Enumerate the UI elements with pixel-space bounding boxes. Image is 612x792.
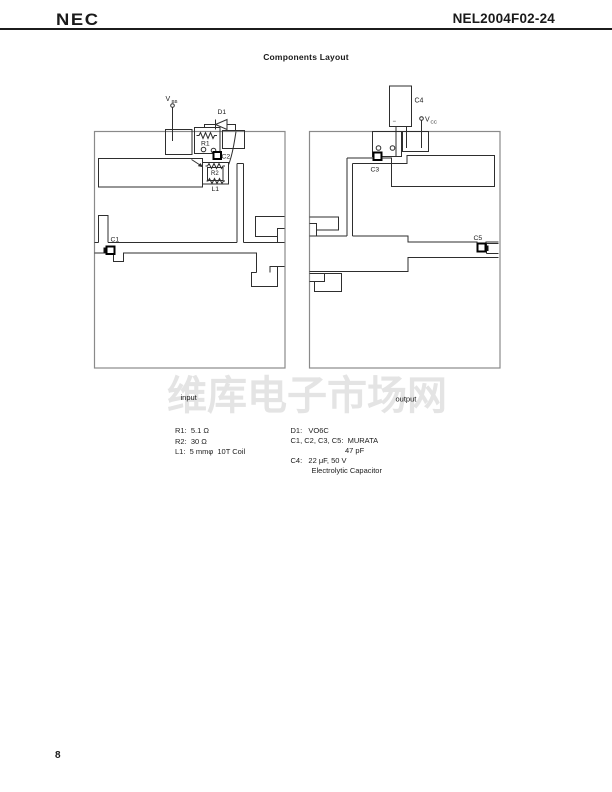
vbb-label-sub: BB xyxy=(172,99,178,104)
output-board-outline xyxy=(310,132,501,369)
parts-list-d1: D1: VO6C xyxy=(291,426,329,436)
c5-label: C5 xyxy=(474,235,483,242)
page-number: 8 xyxy=(55,750,61,761)
c4-polarity-mark: − xyxy=(393,119,397,125)
c5-capacitor xyxy=(478,244,486,252)
vertical-trace xyxy=(347,158,353,236)
output-line-trace xyxy=(310,236,499,272)
vcc-label: V xyxy=(425,117,430,124)
header-rule xyxy=(0,28,612,30)
r1-label: R1 xyxy=(201,141,210,148)
c2-label: C2 xyxy=(222,154,231,161)
c1-capacitor xyxy=(107,247,115,255)
vcc-label-sub: CC xyxy=(431,120,438,125)
vbb-terminal xyxy=(171,104,175,108)
vcc-terminal xyxy=(420,117,424,121)
input-board-outline xyxy=(95,132,286,369)
c1-stub xyxy=(95,216,109,243)
edge-pad-upper xyxy=(256,217,285,243)
parts-list-cap-value: 47 pF xyxy=(345,446,364,456)
output-board xyxy=(310,86,501,368)
edge-pad-lower xyxy=(310,274,342,292)
input-board xyxy=(95,104,286,368)
input-ground-plane xyxy=(99,159,203,188)
c3-capacitor xyxy=(374,153,382,161)
components-layout-diagram: V BB D1 R1 C2 R2 L1 C1 input C4 − V CC C… xyxy=(0,0,612,792)
page-title: Components Layout xyxy=(0,52,612,62)
parts-list-capacitors: C1, C2, C3, C5: MURATA xyxy=(291,436,379,446)
input-caption: input xyxy=(181,393,198,402)
via-hole xyxy=(390,146,395,151)
nec-logo: NEC xyxy=(56,10,100,30)
datasheet-page: NEC NEL2004F02-24 Components Layout 维库电子… xyxy=(0,0,612,792)
c2-capacitor xyxy=(214,152,222,159)
via-hole xyxy=(201,147,206,152)
edge-pad-upper xyxy=(310,217,339,236)
vbb-label: V xyxy=(166,96,171,103)
parts-list-r1: R1: 5.1 Ω xyxy=(175,426,209,436)
c3-connector xyxy=(347,158,392,164)
parts-list-c4: C4: 22 μF, 50 V xyxy=(291,456,347,466)
r2-label: R2 xyxy=(211,171,219,177)
output-caption: output xyxy=(396,395,418,404)
pad xyxy=(166,130,193,155)
parts-list-l1: L1: 5 mmφ 10T Coil xyxy=(175,447,245,457)
part-number: NEL2004F02-24 xyxy=(453,11,555,26)
vertical-trace xyxy=(237,164,244,243)
d1-label: D1 xyxy=(218,109,227,116)
c3-label: C3 xyxy=(371,167,380,174)
l1-label: L1 xyxy=(212,186,220,193)
parts-list-c4-type: Electrolytic Capacitor xyxy=(312,466,382,476)
parts-list-r2: R2: 30 Ω xyxy=(175,437,207,447)
r1-resistor-symbol xyxy=(197,133,218,139)
via-hole xyxy=(376,146,381,151)
input-line-trace xyxy=(95,243,285,273)
c1-label: C1 xyxy=(111,237,120,244)
c4-label: C4 xyxy=(415,98,424,105)
